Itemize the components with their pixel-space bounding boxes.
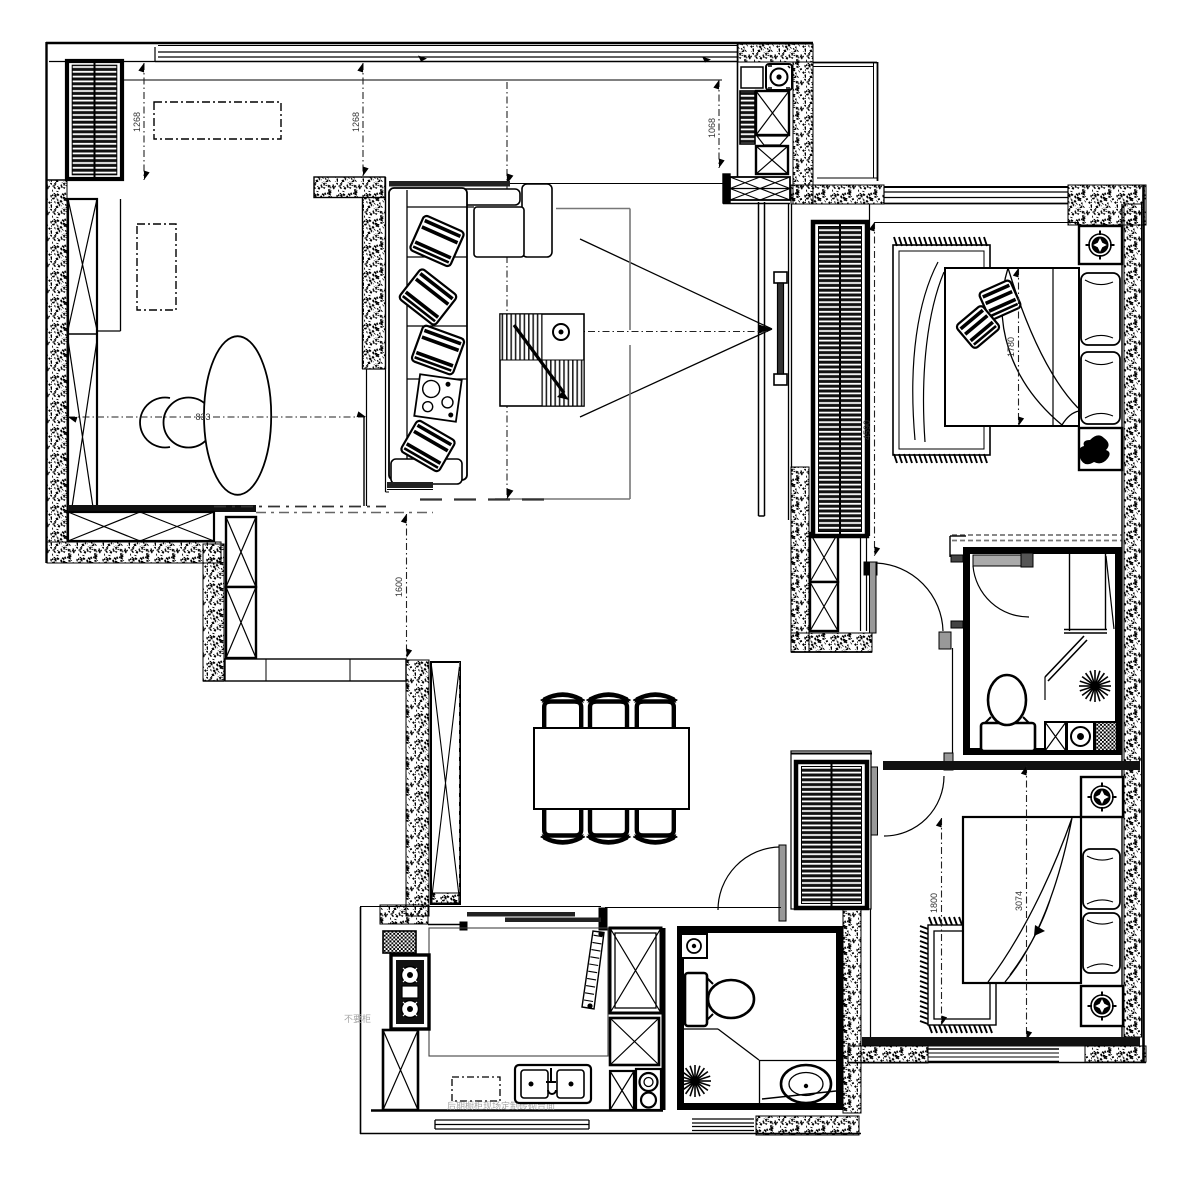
svg-text:1800: 1800	[929, 893, 939, 913]
svg-text:不要柜: 不要柜	[344, 1013, 371, 1024]
svg-text:1068: 1068	[707, 118, 717, 138]
svg-text:833: 833	[195, 412, 210, 422]
svg-text:1268: 1268	[351, 112, 361, 132]
svg-text:3074: 3074	[1014, 891, 1024, 911]
svg-text:1780: 1780	[1006, 337, 1016, 357]
svg-text:4590: 4590	[862, 420, 872, 440]
svg-text:1600: 1600	[394, 577, 404, 597]
svg-text:1268: 1268	[132, 112, 142, 132]
